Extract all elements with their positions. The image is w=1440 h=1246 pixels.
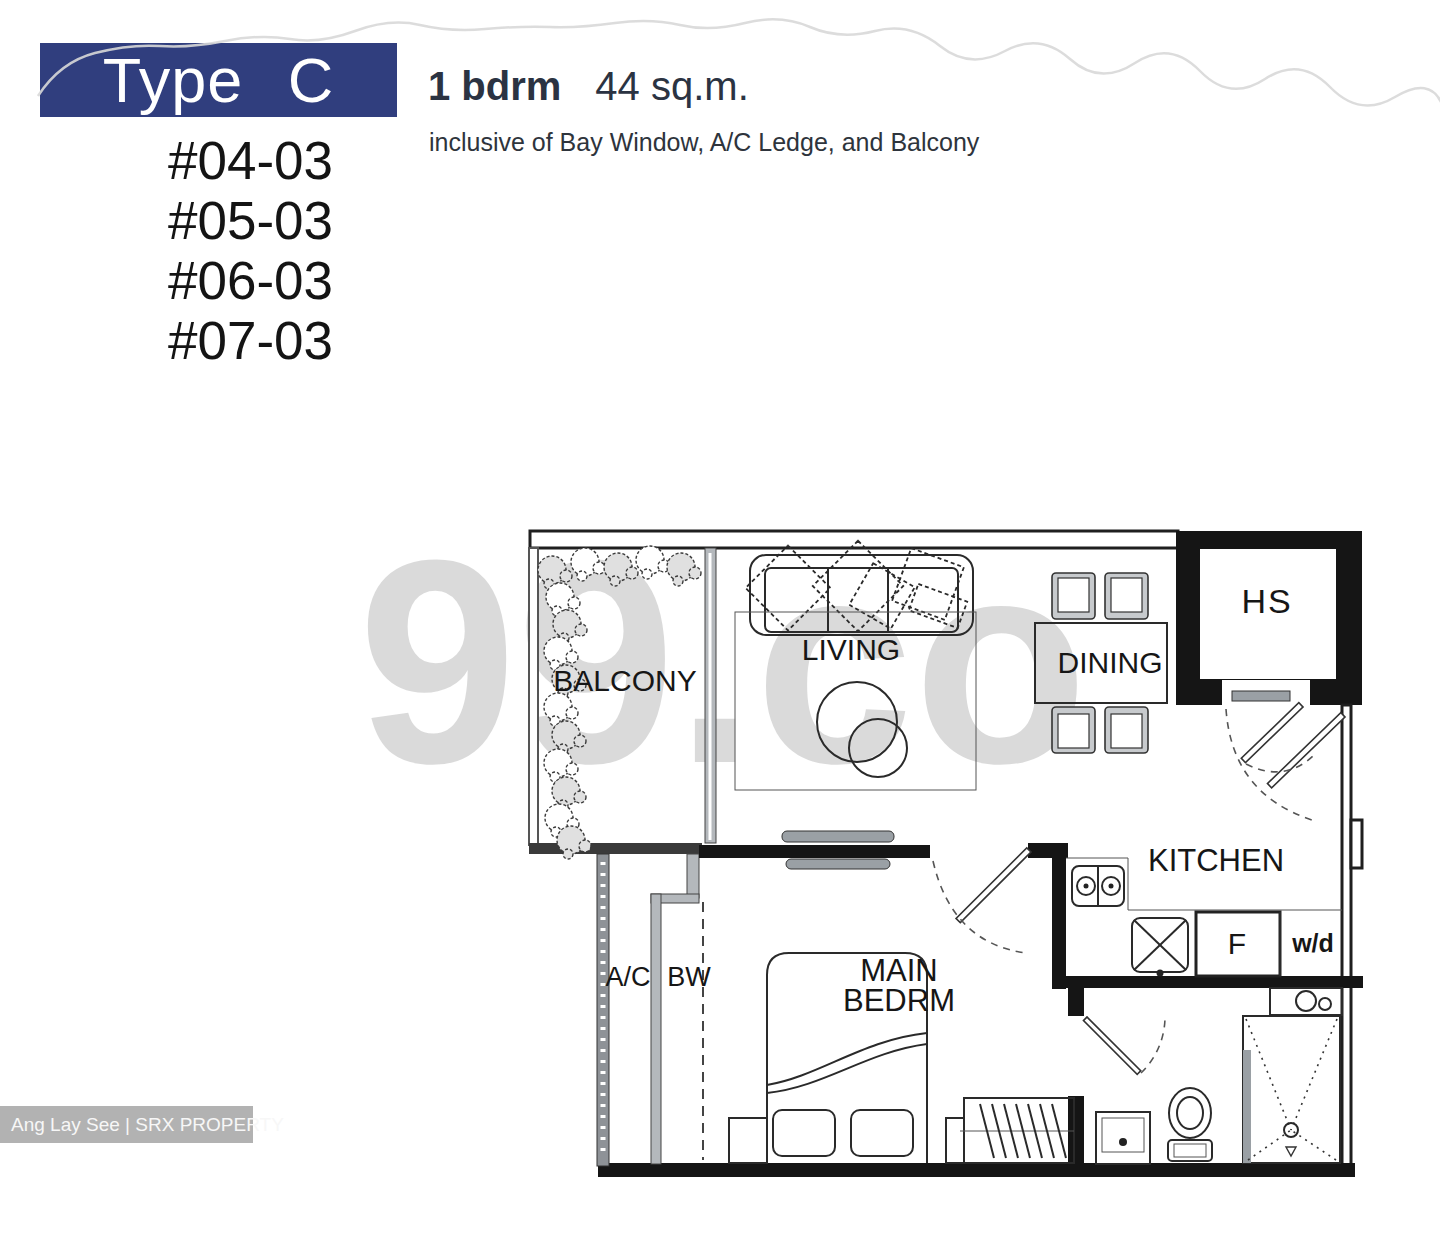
- torn-edge-line: [38, 19, 1440, 105]
- room-label-bay-window: BW: [667, 962, 711, 992]
- label-fridge: F: [1228, 927, 1246, 960]
- wardrobe: [960, 1098, 1074, 1163]
- room-label-balcony: BALCONY: [553, 664, 696, 697]
- room-label-kitchen: KITCHEN: [1148, 843, 1284, 878]
- bathroom-door: [1083, 1017, 1165, 1074]
- bathroom-basin: [1270, 988, 1342, 1015]
- stove: [1072, 866, 1124, 906]
- shower: [1243, 1016, 1340, 1163]
- room-label-ac-ledge: A/C: [605, 962, 650, 992]
- bedside-table-left: [729, 1118, 767, 1163]
- kitchen-sink: [1132, 918, 1188, 977]
- bedside-table-right: [946, 1118, 964, 1163]
- bedroom-door: [933, 848, 1031, 953]
- bathroom-vanity: [1096, 1112, 1150, 1164]
- room-label-dining: DINING: [1058, 646, 1163, 679]
- credit-bar: Ang Lay See | SRX PROPERTY: [0, 1106, 253, 1143]
- room-label-living: LIVING: [802, 633, 900, 666]
- toilet: [1168, 1088, 1212, 1161]
- room-label-main-bedrm-2: BEDRM: [843, 983, 955, 1018]
- label-washer-dryer: w/d: [1291, 929, 1334, 957]
- room-label-hs: HS: [1241, 582, 1292, 620]
- floorplan-drawing: 99.co: [0, 0, 1440, 1246]
- entry-door: [1226, 703, 1345, 820]
